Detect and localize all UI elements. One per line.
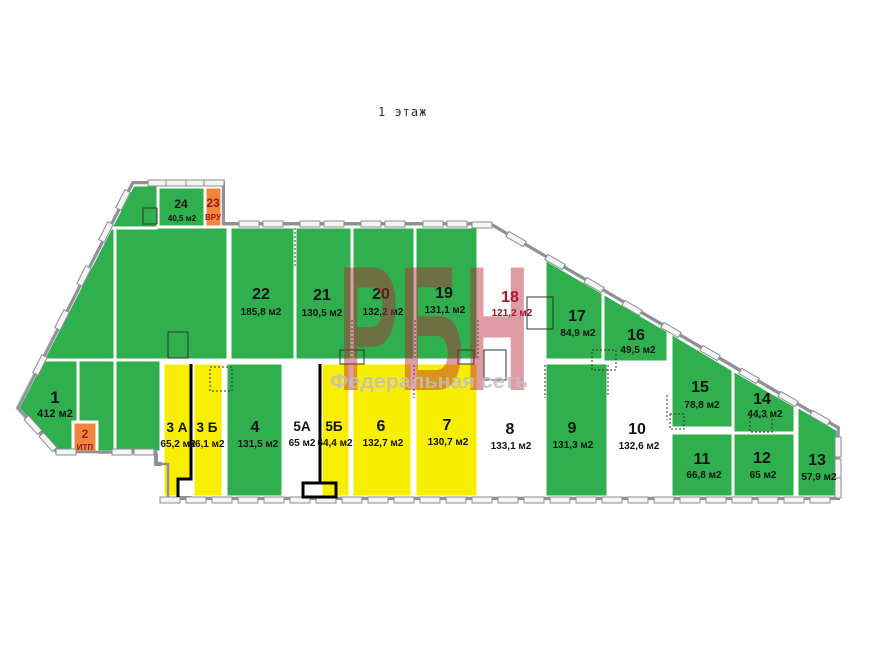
room-4-area: 131,5 м2 xyxy=(238,439,279,450)
room-3b-number: 3 Б xyxy=(197,420,218,435)
room-5a-number: 5А xyxy=(293,419,311,434)
window-mark xyxy=(423,221,443,227)
room-9-area: 131,3 м2 xyxy=(553,440,594,451)
room-13-area: 57,9 м2 xyxy=(801,472,837,483)
room-5b-area: 64,4 м2 xyxy=(317,438,353,449)
window-mark xyxy=(602,497,622,503)
window-mark xyxy=(758,497,778,503)
window-mark xyxy=(810,497,830,503)
room-10-area: 132,6 м2 xyxy=(619,441,660,452)
window-mark xyxy=(835,437,841,457)
room-16-area: 49,5 м2 xyxy=(620,345,656,356)
room-5a-area: 65 м2 xyxy=(289,438,316,449)
room-21-area: 130,5 м2 xyxy=(302,308,343,319)
window-mark xyxy=(472,222,492,228)
floorplan-drawing: 1412 м22440,5 м223ВРУ2ИТП22185,8 м221130… xyxy=(0,0,870,652)
room-11-number: 11 xyxy=(694,451,711,468)
room-1-area: 412 м2 xyxy=(37,408,73,420)
room-23-area: ВРУ xyxy=(205,213,222,222)
room-4-number: 4 xyxy=(251,419,260,436)
room-22-number: 22 xyxy=(252,286,270,303)
window-mark xyxy=(550,497,570,503)
window-mark xyxy=(706,497,726,503)
window-mark xyxy=(732,497,752,503)
room-6-area: 132,7 м2 xyxy=(363,438,404,449)
floorplan-page: 1 этаж 1412 м22440,5 м223ВРУ2ИТП22185,8 … xyxy=(0,0,870,652)
window-mark xyxy=(56,449,76,455)
window-mark xyxy=(394,497,414,503)
room-10-number: 10 xyxy=(628,421,646,438)
window-mark xyxy=(472,497,492,503)
window-mark xyxy=(654,497,674,503)
room-14-area: 44,3 м2 xyxy=(747,409,783,420)
room-13-number: 13 xyxy=(808,452,826,469)
room-15-number: 15 xyxy=(691,379,709,396)
room-12-area: 65 м2 xyxy=(750,470,777,481)
window-mark xyxy=(300,221,320,227)
room-14-number: 14 xyxy=(753,391,771,408)
room-1-number: 1 xyxy=(50,388,59,407)
window-mark xyxy=(186,180,206,186)
window-mark xyxy=(166,180,186,186)
window-mark xyxy=(186,497,206,503)
room-21-number: 21 xyxy=(313,287,331,304)
window-mark xyxy=(160,497,180,503)
window-mark xyxy=(447,221,467,227)
room-16-number: 16 xyxy=(627,327,645,344)
room-24-area: 40,5 м2 xyxy=(168,214,197,223)
watermark-logo-text: РБН xyxy=(338,229,530,428)
window-mark xyxy=(148,180,168,186)
room-2-area: ИТП xyxy=(77,443,94,452)
window-mark xyxy=(576,497,596,503)
window-mark xyxy=(628,497,648,503)
room-24-number: 24 xyxy=(174,197,188,211)
window-mark xyxy=(385,221,405,227)
room-22-area: 185,8 м2 xyxy=(241,307,282,318)
room-11-area: 66,8 м2 xyxy=(686,470,722,481)
watermark-subtitle-text: Федеральная сеть xyxy=(330,371,528,393)
room-9-number: 9 xyxy=(568,420,577,437)
window-mark xyxy=(446,497,466,503)
window-mark xyxy=(420,497,440,503)
room-17-area: 84,9 м2 xyxy=(560,328,596,339)
window-mark xyxy=(239,221,259,227)
window-mark xyxy=(238,497,258,503)
window-mark xyxy=(112,449,132,455)
window-mark xyxy=(498,497,518,503)
room-8-area: 133,1 м2 xyxy=(491,441,532,452)
window-mark xyxy=(212,497,232,503)
window-mark xyxy=(361,221,381,227)
room-12-number: 12 xyxy=(753,450,771,467)
room-17-number: 17 xyxy=(568,308,586,325)
window-mark xyxy=(784,497,804,503)
window-mark xyxy=(204,180,224,186)
window-mark xyxy=(134,449,154,455)
room-23-number: 23 xyxy=(206,196,220,210)
room-15-area: 78,8 м2 xyxy=(684,400,720,411)
window-mark xyxy=(263,221,283,227)
window-mark xyxy=(524,497,544,503)
window-mark xyxy=(342,497,362,503)
window-mark xyxy=(324,221,344,227)
window-mark xyxy=(264,497,284,503)
room-3a-number: 3 А xyxy=(166,420,187,435)
window-mark xyxy=(680,497,700,503)
room-7-area: 130,7 м2 xyxy=(428,437,469,448)
room-3a-area: 65,2 м2 xyxy=(160,439,196,450)
window-mark xyxy=(368,497,388,503)
room-2-number: 2 xyxy=(82,427,89,441)
room-9 xyxy=(545,363,608,497)
